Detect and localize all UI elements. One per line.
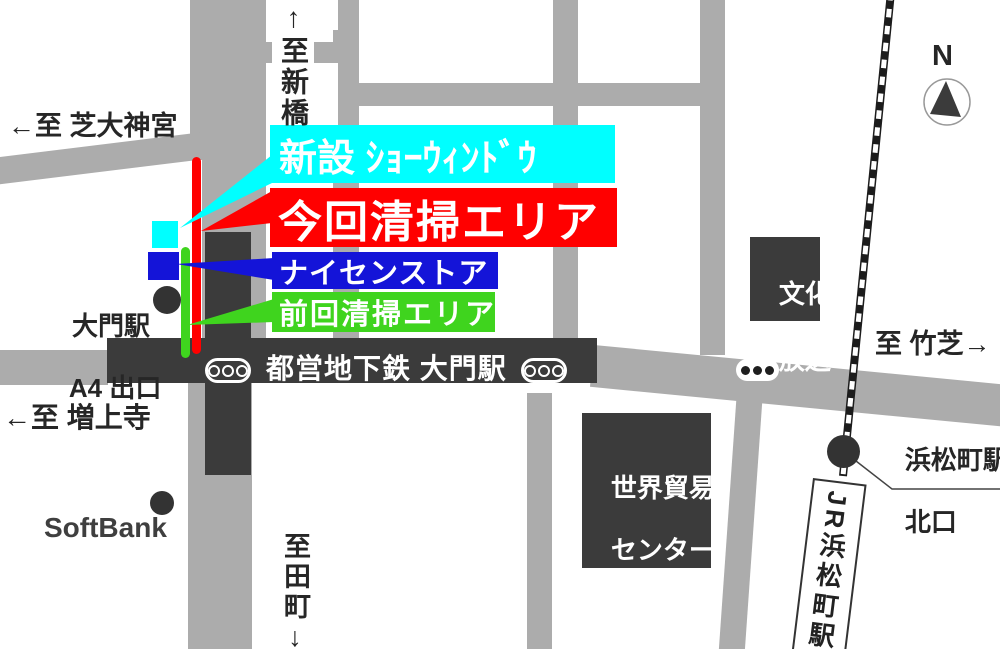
signal-dot-icon xyxy=(538,365,550,377)
wtc-line2: センター xyxy=(611,535,715,565)
daimon-exit-line2: A4 出口 xyxy=(69,373,161,403)
compass-icon xyxy=(924,79,970,125)
bunka-line2: 放送 xyxy=(779,345,831,375)
signal-pill-icon xyxy=(521,358,567,383)
hamamatsucho-line1: 浜松町駅 xyxy=(905,445,1000,475)
hamamatsucho-dot-icon xyxy=(827,435,860,468)
previous-cleaning-line xyxy=(181,247,190,358)
road-d-vertical xyxy=(700,0,725,355)
legend-previous-area-label: 前回清掃エリア xyxy=(279,291,496,333)
jr-hamamatsucho-station: JR浜松町駅 xyxy=(789,478,866,649)
legend-current-area-label: 今回清掃エリア xyxy=(278,186,600,250)
signal-dot-icon xyxy=(741,366,750,375)
hamamatsucho-exit-label: 浜松町駅 北口 xyxy=(876,414,1000,569)
road-connector-h2 xyxy=(333,83,701,106)
subway-bar-label: 都営地下鉄 大門駅 xyxy=(266,347,507,387)
hamamatsucho-line2: 北口 xyxy=(905,507,957,537)
daimon-area-map: JR浜松町駅 新設 ｼｮｰｳｨﾝﾄﾞｳ 今回清掃エリア ナイセンストア 前回清掃… xyxy=(0,0,1000,649)
legend-store: ナイセンストア xyxy=(272,252,498,289)
compass-n-label: N xyxy=(932,40,953,73)
legend-previous-area: 前回清掃エリア xyxy=(272,292,495,332)
direction-shinbashi: ↑至新橋 xyxy=(279,2,307,129)
store-marker xyxy=(148,252,179,280)
daimon-exit-line1: 大門駅 xyxy=(72,311,150,341)
show-window-marker xyxy=(152,221,178,248)
road-south-east xyxy=(718,390,763,649)
road-south-center xyxy=(527,393,552,649)
legend-store-label: ナイセンストア xyxy=(279,250,488,292)
wtc-label: 世界貿易 センター ビル xyxy=(582,442,711,649)
direction-takeshiba: 至 竹芝→ xyxy=(875,322,991,361)
bunka-hoso-label: 文化 放送 xyxy=(750,245,820,410)
softbank-label: SoftBank xyxy=(44,512,167,544)
bunka-line1: 文化 xyxy=(779,279,831,309)
wtc-line1: 世界貿易 xyxy=(611,473,715,503)
signal-dot-icon xyxy=(524,365,536,377)
direction-shiba-daijingu: ←至 芝大神宮 xyxy=(8,104,178,143)
signal-dot-icon xyxy=(236,365,248,377)
signal-dot-icon xyxy=(552,365,564,377)
direction-tamachi: 至田町↓ xyxy=(281,532,308,649)
legend-new-window-label: 新設 ｼｮｰｳｨﾝﾄﾞｳ xyxy=(279,127,537,182)
current-cleaning-line xyxy=(192,157,201,354)
jr-station-label: JR浜松町駅 xyxy=(798,489,857,649)
legend-new-window: 新設 ｼｮｰｳｨﾝﾄﾞｳ xyxy=(270,125,615,183)
signal-pill-icon xyxy=(205,358,251,383)
legend-current-area: 今回清掃エリア xyxy=(270,188,617,247)
daimon-exit-label: 大門駅 A4 出口 xyxy=(40,280,150,435)
signal-dot-icon xyxy=(208,365,220,377)
daimon-exit-dot-icon xyxy=(153,286,181,314)
wtc-line3: ビル xyxy=(635,597,687,627)
signal-dot-icon xyxy=(222,365,234,377)
